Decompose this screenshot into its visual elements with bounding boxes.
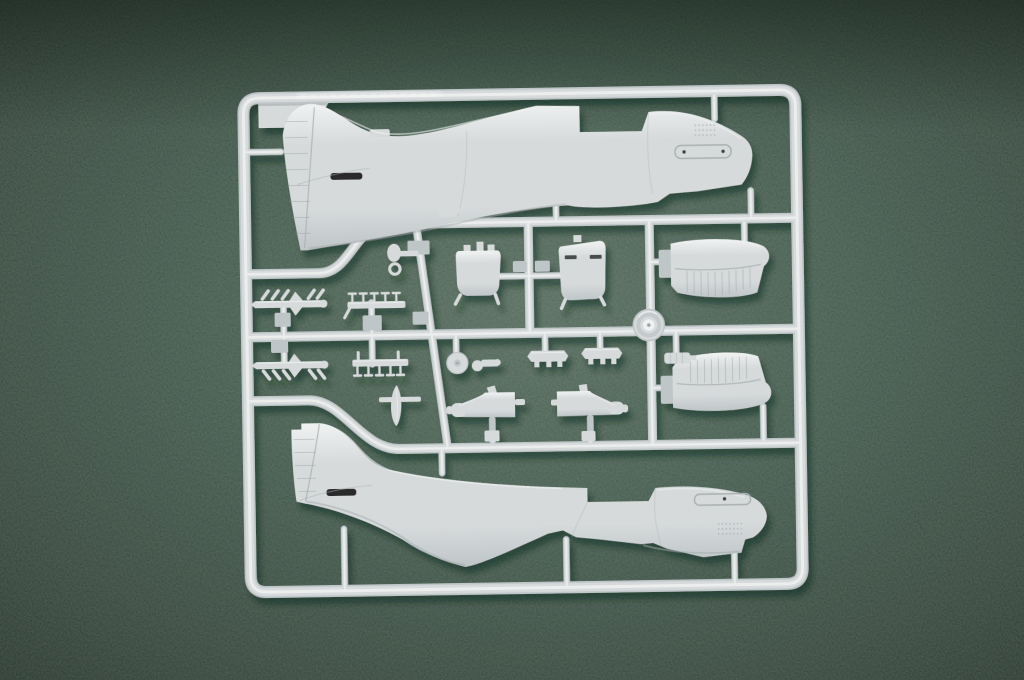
part-wheel [633,309,664,340]
part-stab-upper [658,238,769,298]
fuselage-bottom-slot [326,489,356,496]
background-felt [0,0,1024,680]
felt-top-vignette [0,0,1024,130]
sprue-photo: Plastic model kit sprue with two aircraf… [0,0,1024,680]
photo-scene: Plastic model kit sprue with two aircraf… [0,0,1024,680]
part-brake-disc [447,352,468,373]
fuselage-top-slot [330,173,362,181]
